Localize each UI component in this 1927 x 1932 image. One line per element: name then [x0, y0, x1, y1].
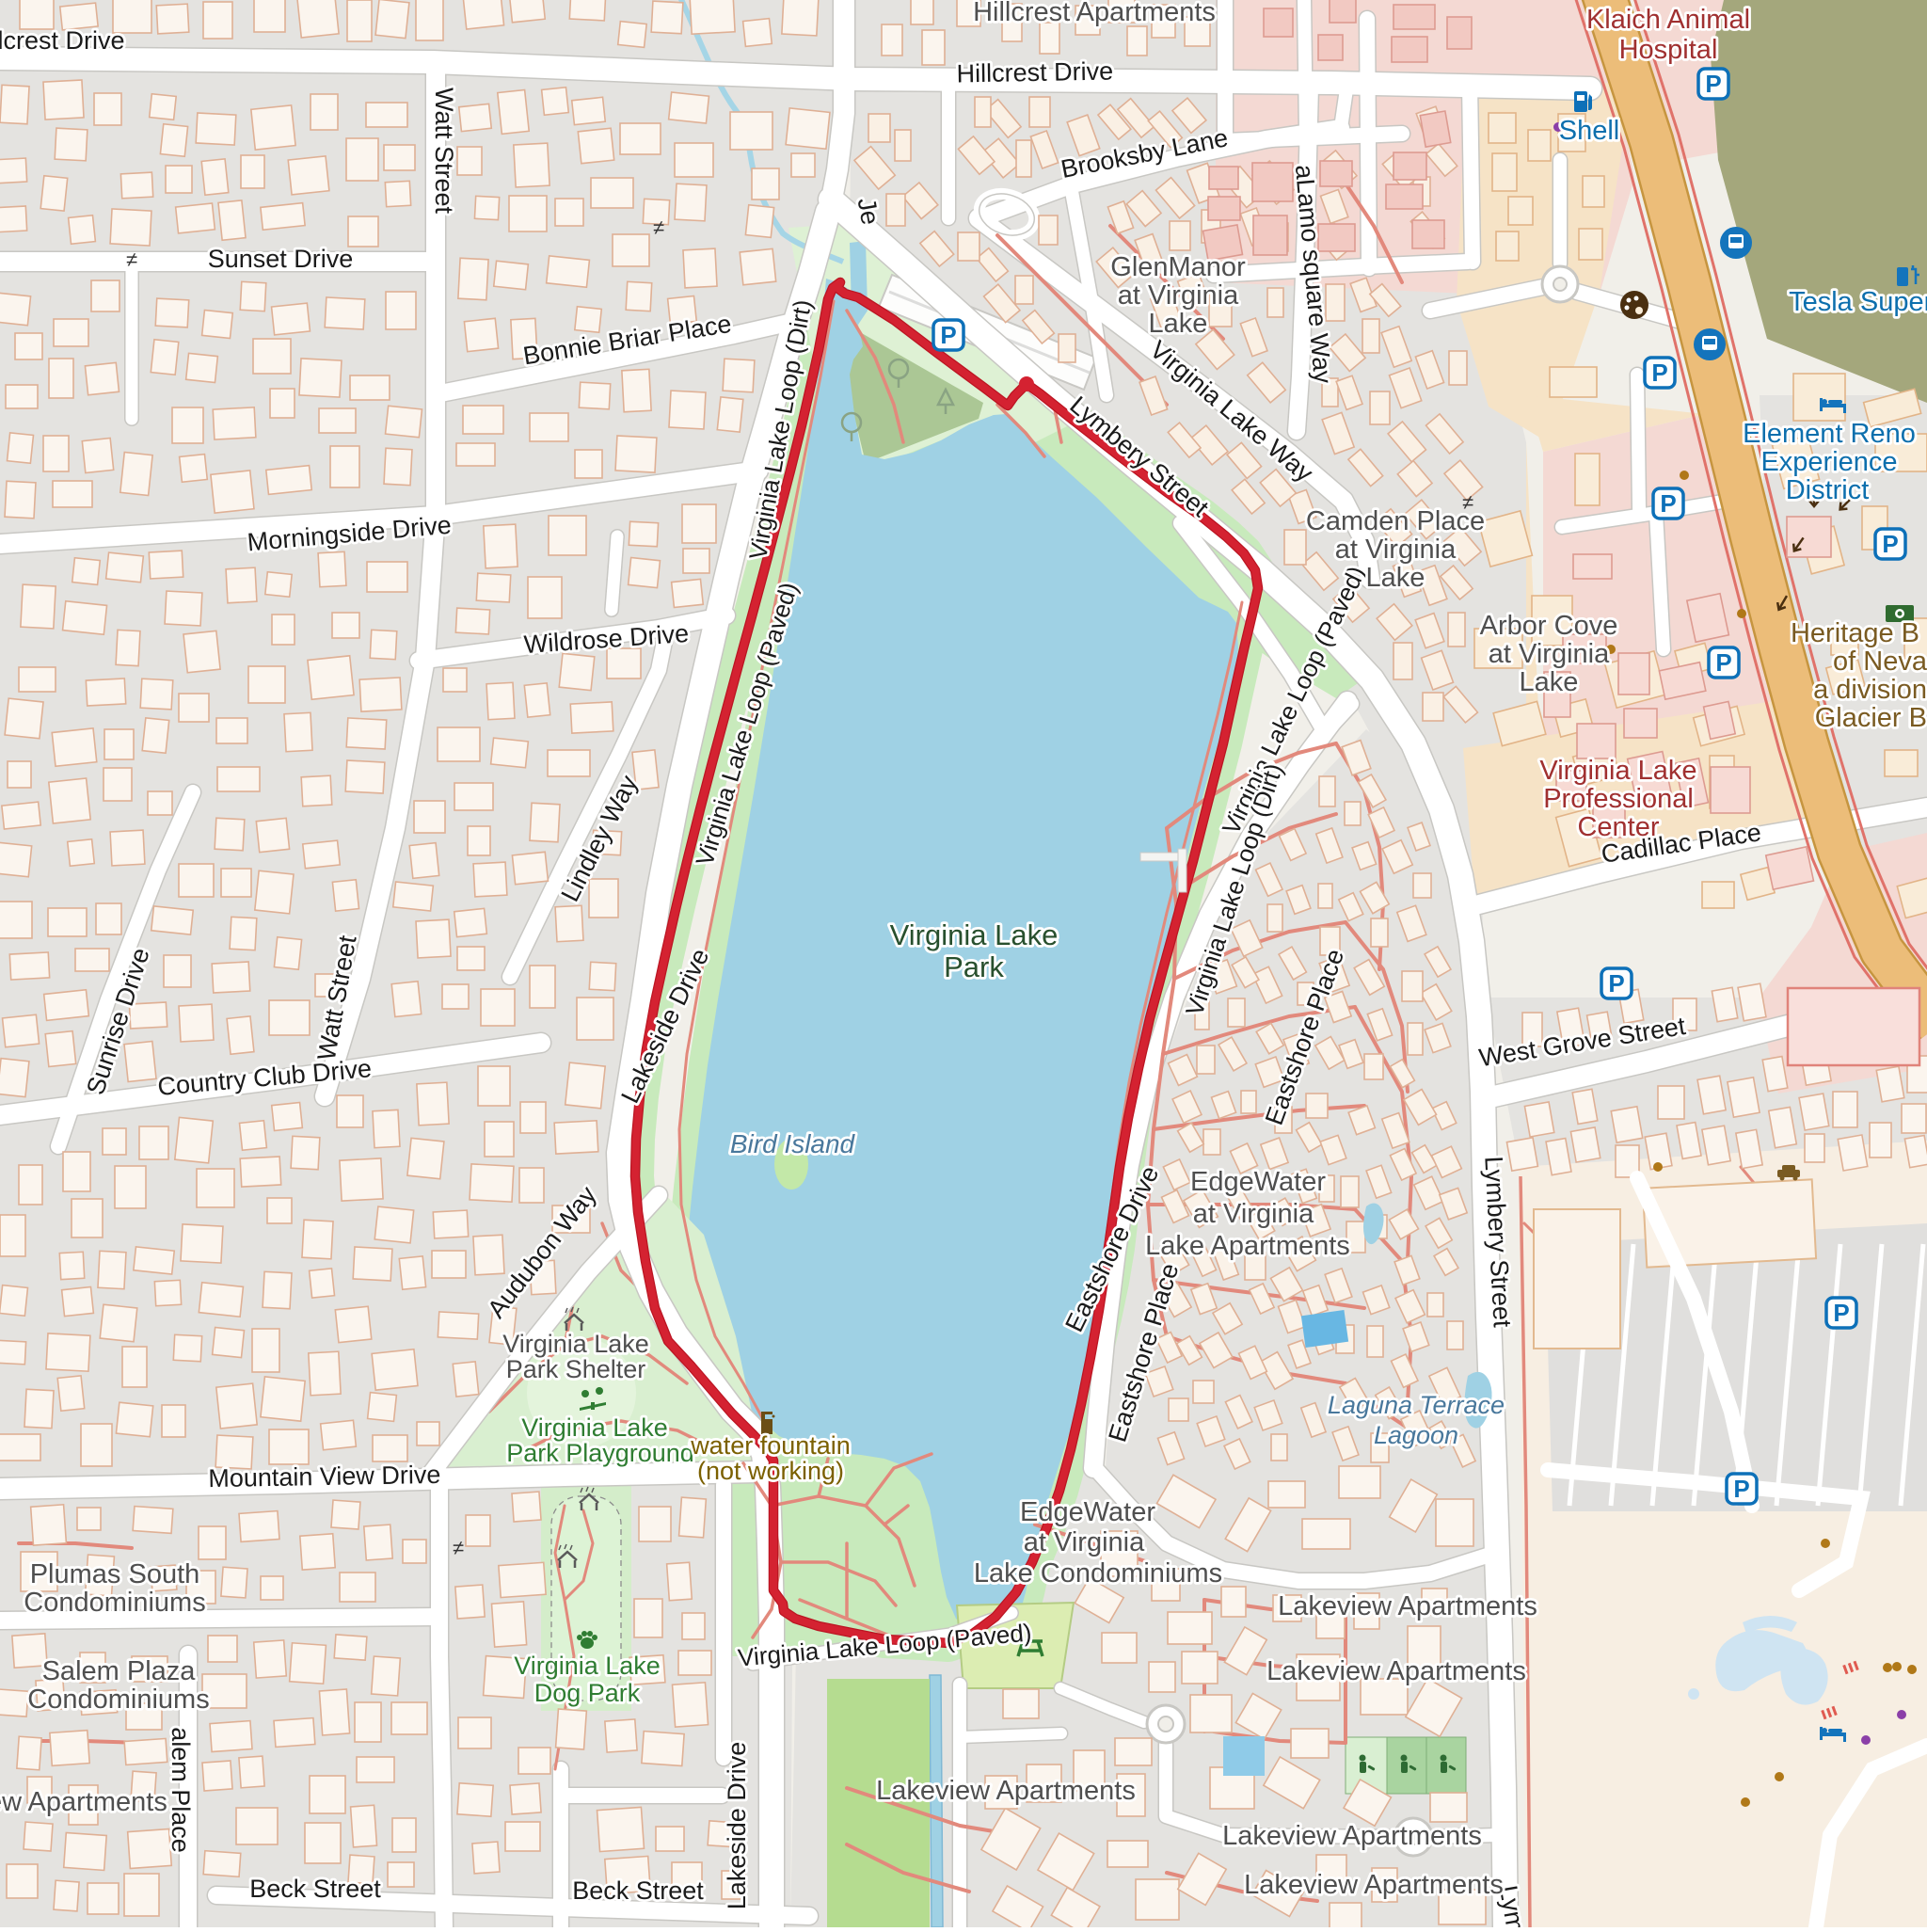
svg-text:P: P [1882, 530, 1898, 558]
svg-text:Lake: Lake [1149, 309, 1208, 339]
svg-text:at Virginia: at Virginia [1335, 535, 1457, 565]
svg-text:Virginia Lake: Virginia Lake [1539, 756, 1696, 786]
svg-text:at Virginia: at Virginia [1193, 1199, 1314, 1229]
svg-text:Arbor Cove: Arbor Cove [1480, 611, 1618, 641]
svg-text:Hillcrest Drive: Hillcrest Drive [956, 57, 1113, 88]
svg-text:Lake Condominiums: Lake Condominiums [974, 1558, 1222, 1589]
svg-text:Lakeview Apartments: Lakeview Apartments [1278, 1591, 1537, 1621]
svg-text:Camden Place: Camden Place [1306, 506, 1485, 536]
svg-text:Lake Apartments: Lake Apartments [1145, 1231, 1350, 1261]
svg-text:Beck Street: Beck Street [572, 1876, 704, 1905]
svg-text:Lake: Lake [1520, 667, 1579, 697]
svg-text:Virginia Lake: Virginia Lake [521, 1413, 668, 1442]
svg-text:Experience: Experience [1760, 447, 1897, 477]
svg-text:District: District [1786, 475, 1870, 505]
svg-text:P: P [1833, 1299, 1849, 1327]
svg-text:Klaich Animal: Klaich Animal [1586, 5, 1750, 35]
svg-text:P: P [1705, 70, 1721, 98]
svg-text:Mountain View Drive: Mountain View Drive [208, 1461, 441, 1493]
svg-text:at Virginia: at Virginia [1118, 280, 1239, 311]
svg-text:≠: ≠ [453, 1536, 464, 1559]
svg-text:GlenManor: GlenManor [1110, 252, 1246, 282]
svg-text:of Neva: of Neva [1833, 647, 1927, 677]
svg-text:Lagoon: Lagoon [1374, 1421, 1458, 1449]
svg-text:Laguna Terrace: Laguna Terrace [1328, 1391, 1505, 1419]
svg-text:Plumas South: Plumas South [30, 1559, 200, 1589]
svg-text:≠: ≠ [653, 216, 664, 239]
svg-text:Dog Park: Dog Park [534, 1679, 641, 1707]
svg-text:Park Shelter: Park Shelter [506, 1355, 646, 1383]
svg-text:Shell: Shell [1559, 116, 1620, 146]
svg-text:P: P [1660, 489, 1676, 518]
svg-text:Tesla Superch: Tesla Superch [1789, 287, 1927, 317]
svg-text:Lakeview Apartments: Lakeview Apartments [1222, 1821, 1482, 1851]
svg-text:Hospital: Hospital [1619, 35, 1718, 65]
svg-text:Lakeview Apartments: Lakeview Apartments [1244, 1870, 1504, 1900]
svg-text:Condominiums: Condominiums [24, 1588, 205, 1618]
svg-text:Virginia Lake: Virginia Lake [514, 1652, 661, 1680]
svg-text:water fountain: water fountain [690, 1431, 851, 1460]
svg-text:alem Place: alem Place [167, 1727, 195, 1853]
svg-text:Professional: Professional [1543, 784, 1694, 814]
svg-text:Hillcrest Apartments: Hillcrest Apartments [973, 0, 1216, 27]
svg-text:P: P [1651, 359, 1667, 387]
svg-text:llcrest Drive: llcrest Drive [0, 26, 125, 55]
svg-text:Glacier B: Glacier B [1815, 703, 1927, 733]
svg-text:P: P [1733, 1475, 1749, 1503]
svg-text:(not working): (not working) [697, 1457, 844, 1485]
svg-text:Je: Je [852, 196, 884, 227]
svg-text:at Virginia: at Virginia [1489, 639, 1610, 669]
svg-text:Center: Center [1577, 812, 1659, 842]
svg-text:at Virginia: at Virginia [1024, 1527, 1145, 1557]
svg-text:a division: a division [1813, 675, 1927, 705]
svg-text:Condominiums: Condominiums [27, 1685, 209, 1715]
svg-text:Salem Plaza: Salem Plaza [42, 1656, 197, 1686]
svg-text:Park: Park [944, 950, 1004, 983]
svg-text:Lake: Lake [1366, 563, 1425, 593]
svg-text:P: P [940, 321, 956, 349]
svg-text:Watt Street: Watt Street [430, 88, 458, 215]
svg-text:Lakeview Apartments: Lakeview Apartments [0, 1787, 167, 1817]
svg-text:Lakeview Apartments: Lakeview Apartments [1266, 1656, 1526, 1686]
svg-text:Bird Island: Bird Island [730, 1129, 856, 1158]
svg-text:Lakeview Apartments: Lakeview Apartments [876, 1776, 1136, 1806]
svg-text:Heritage B: Heritage B [1791, 618, 1919, 648]
svg-text:P: P [1608, 969, 1624, 998]
svg-text:EdgeWater: EdgeWater [1190, 1167, 1326, 1197]
svg-text:P: P [1715, 648, 1731, 677]
svg-text:Element Reno: Element Reno [1743, 419, 1916, 449]
svg-text:Sunset Drive: Sunset Drive [208, 245, 354, 273]
svg-text:Park Playground: Park Playground [506, 1439, 694, 1467]
svg-text:Lakeside Drive: Lakeside Drive [723, 1742, 751, 1910]
svg-text:Virginia Lake: Virginia Lake [890, 918, 1059, 951]
svg-text:EdgeWater: EdgeWater [1020, 1497, 1155, 1527]
svg-text:Beck Street: Beck Street [249, 1875, 381, 1903]
svg-text:Virginia Lake: Virginia Lake [502, 1330, 649, 1358]
svg-text:≠: ≠ [126, 247, 137, 271]
